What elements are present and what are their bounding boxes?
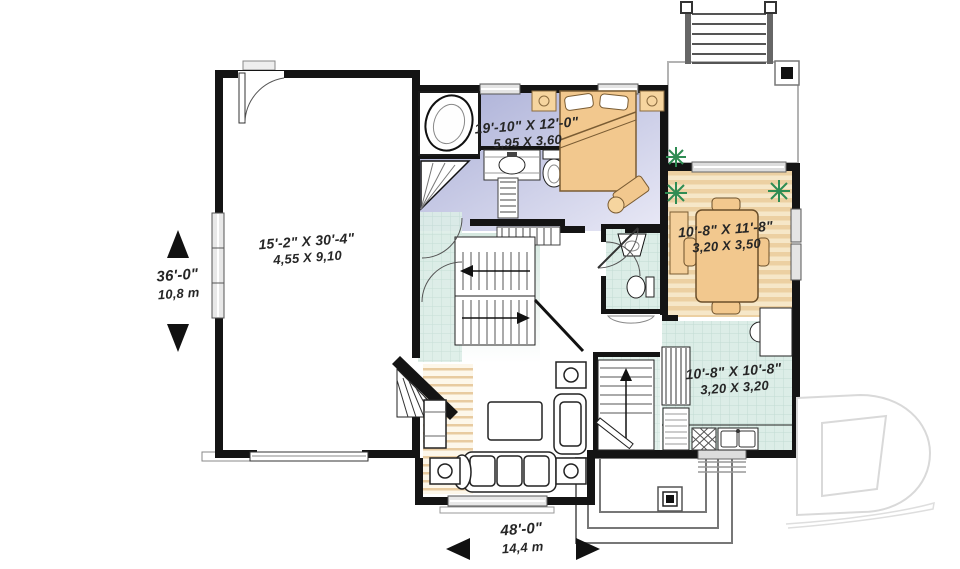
plant-icon (665, 182, 687, 204)
newel-post (681, 2, 692, 13)
stair-rail (535, 300, 583, 351)
plant-icon (666, 147, 686, 167)
deck-column (775, 61, 799, 85)
garage-side-step (243, 61, 275, 70)
nightstand (532, 91, 556, 111)
garage-door (250, 452, 368, 461)
stair-rail (767, 12, 773, 64)
vanity-sink (484, 150, 540, 180)
nightstand (640, 91, 664, 111)
powder-step (608, 316, 654, 323)
front-porch (576, 458, 732, 543)
main-stairs (455, 237, 583, 351)
coffee-table (488, 402, 542, 440)
powder-toilet (646, 277, 654, 297)
dining-chair (712, 198, 740, 211)
dimension-arrow-down (167, 324, 189, 352)
sofa (453, 452, 556, 492)
kitchen-sink (718, 428, 758, 450)
exterior-stairs (692, 14, 766, 63)
dining-chair (712, 301, 740, 314)
lamp-table (556, 362, 586, 388)
media-cabinet (424, 400, 446, 448)
armchair (554, 394, 586, 454)
dimension-arrow-up (167, 230, 189, 258)
basement-stairs (596, 360, 654, 450)
floor-plan-page: 19'-10" X 12'-0" 5,95 X 3,60 15'-2" X 30… (0, 0, 960, 569)
porch-column (658, 487, 682, 511)
height-dimension-label: 36'-0" 10,8 m (132, 263, 224, 306)
stair-rail (685, 12, 691, 64)
fridge (663, 408, 689, 450)
watermark-logo (786, 395, 934, 528)
rear-deck (668, 2, 799, 163)
plant-icon (768, 180, 790, 202)
newel-post (765, 2, 776, 13)
lamp-table (556, 458, 586, 484)
kitchen-exterior-door (698, 450, 746, 459)
stove (692, 428, 716, 450)
living-window-sill (440, 507, 554, 513)
lamp-table (430, 458, 460, 484)
